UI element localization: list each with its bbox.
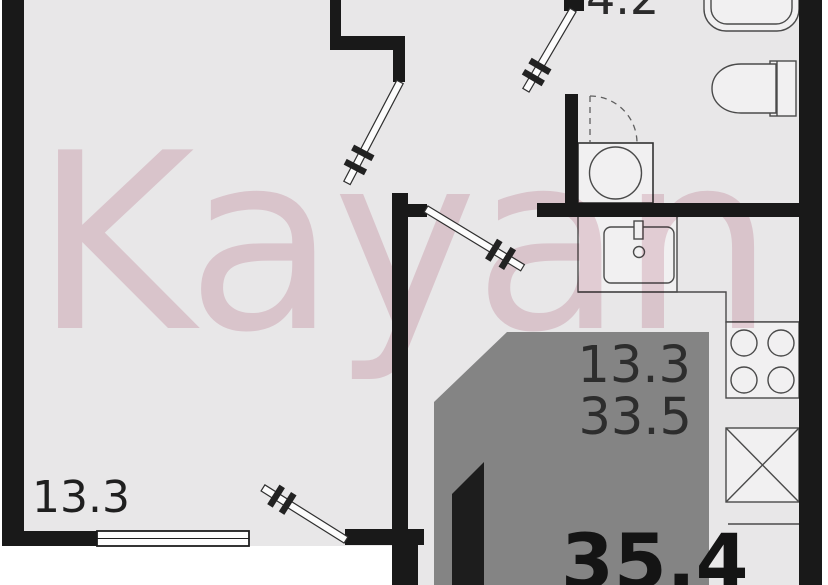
wall-top-horizontal — [330, 36, 405, 50]
wall-bath-stub — [564, 0, 584, 11]
wall-bottom-column — [392, 545, 418, 585]
wall-kitchen-stub — [408, 204, 427, 217]
wall-bottom-left — [2, 531, 97, 546]
card-big-area-label: 35.4 — [561, 524, 749, 585]
wall-right — [799, 0, 822, 585]
card-living-area-label: 13.3 — [577, 340, 691, 391]
hall-area-label: 4.2 — [586, 0, 659, 21]
door-leaf-bathroom — [516, 4, 583, 96]
living-area-label: 13.3 — [32, 476, 130, 520]
wall-divider — [392, 193, 408, 545]
floor-plan: Kayan — [0, 0, 828, 585]
door-leaf-balcony — [257, 478, 352, 550]
wall-top-jog — [393, 50, 405, 82]
card-total-area-label: 33.5 — [578, 392, 692, 443]
wall-bottom-right — [345, 529, 424, 545]
door-leaf-living — [337, 77, 410, 189]
wall-bath-left — [565, 94, 578, 204]
wall-left — [2, 0, 24, 546]
wall-bath-bottom — [537, 203, 800, 217]
door-leaf-kitchen — [420, 199, 529, 277]
